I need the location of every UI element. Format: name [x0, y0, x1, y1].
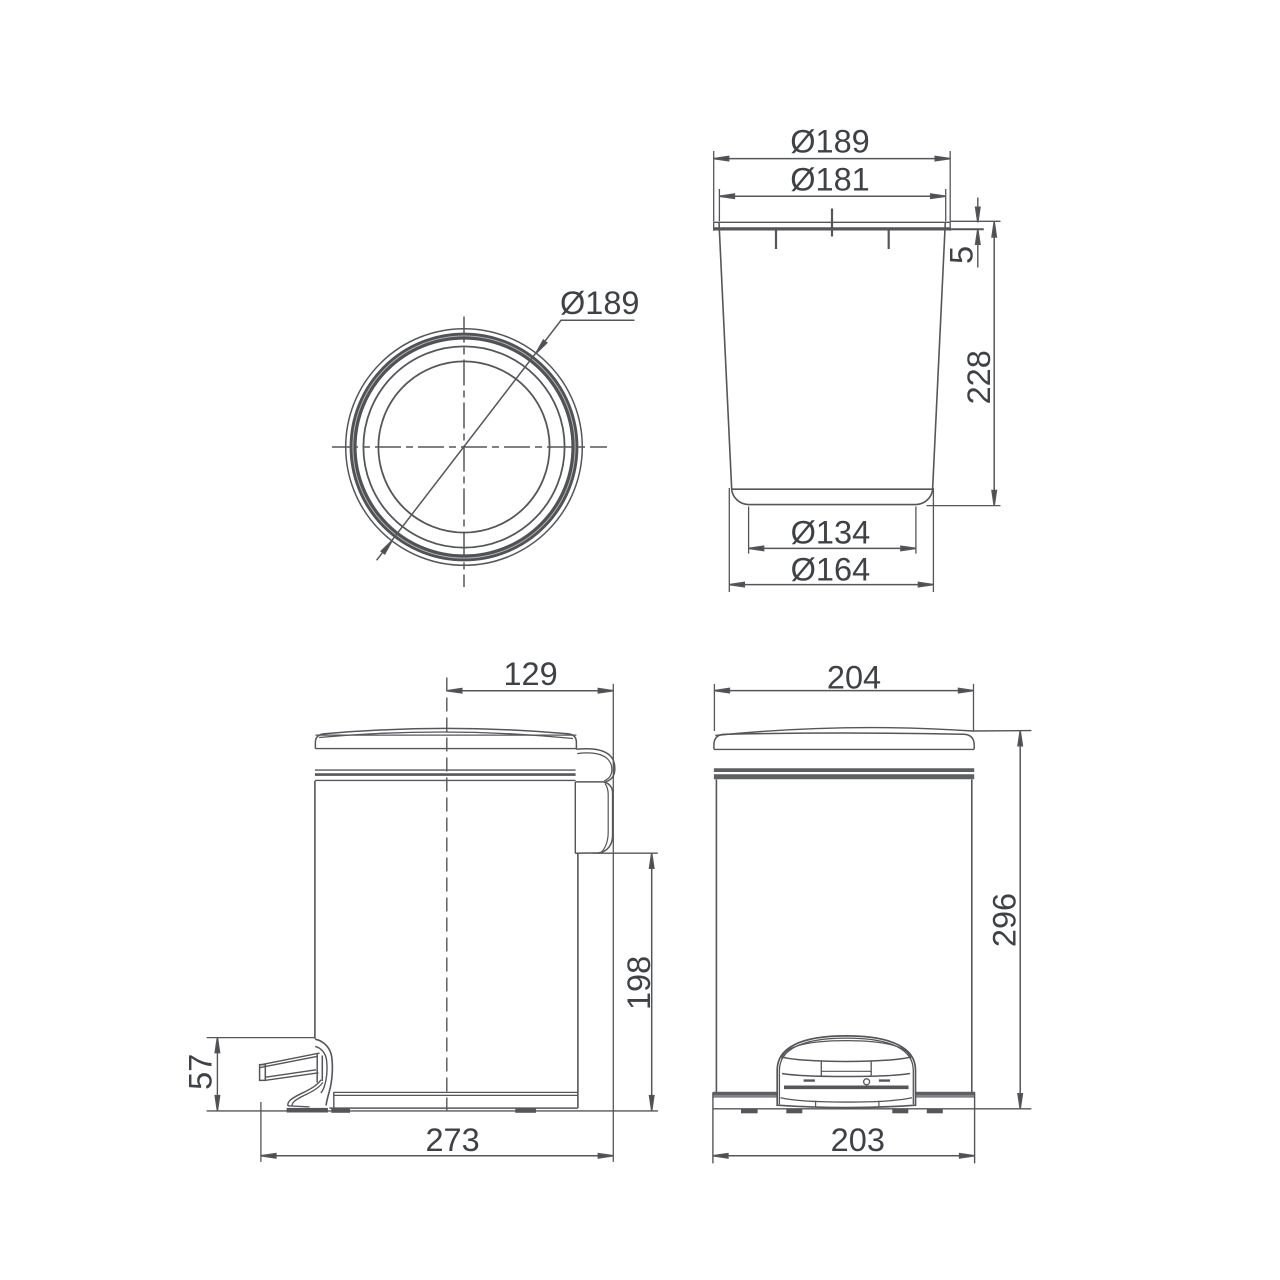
svg-text:228: 228 [961, 350, 997, 404]
svg-text:Ø189: Ø189 [790, 124, 870, 160]
svg-text:198: 198 [621, 956, 657, 1010]
svg-text:204: 204 [827, 659, 881, 695]
svg-text:5: 5 [944, 246, 980, 264]
svg-text:273: 273 [425, 1122, 479, 1158]
svg-text:129: 129 [503, 656, 557, 692]
svg-text:Ø134: Ø134 [791, 514, 871, 550]
svg-text:Ø189: Ø189 [560, 285, 640, 321]
svg-text:Ø164: Ø164 [791, 552, 871, 588]
svg-text:296: 296 [987, 893, 1023, 947]
svg-text:203: 203 [831, 1122, 885, 1158]
svg-text:Ø181: Ø181 [790, 161, 870, 197]
svg-text:57: 57 [182, 1054, 218, 1090]
